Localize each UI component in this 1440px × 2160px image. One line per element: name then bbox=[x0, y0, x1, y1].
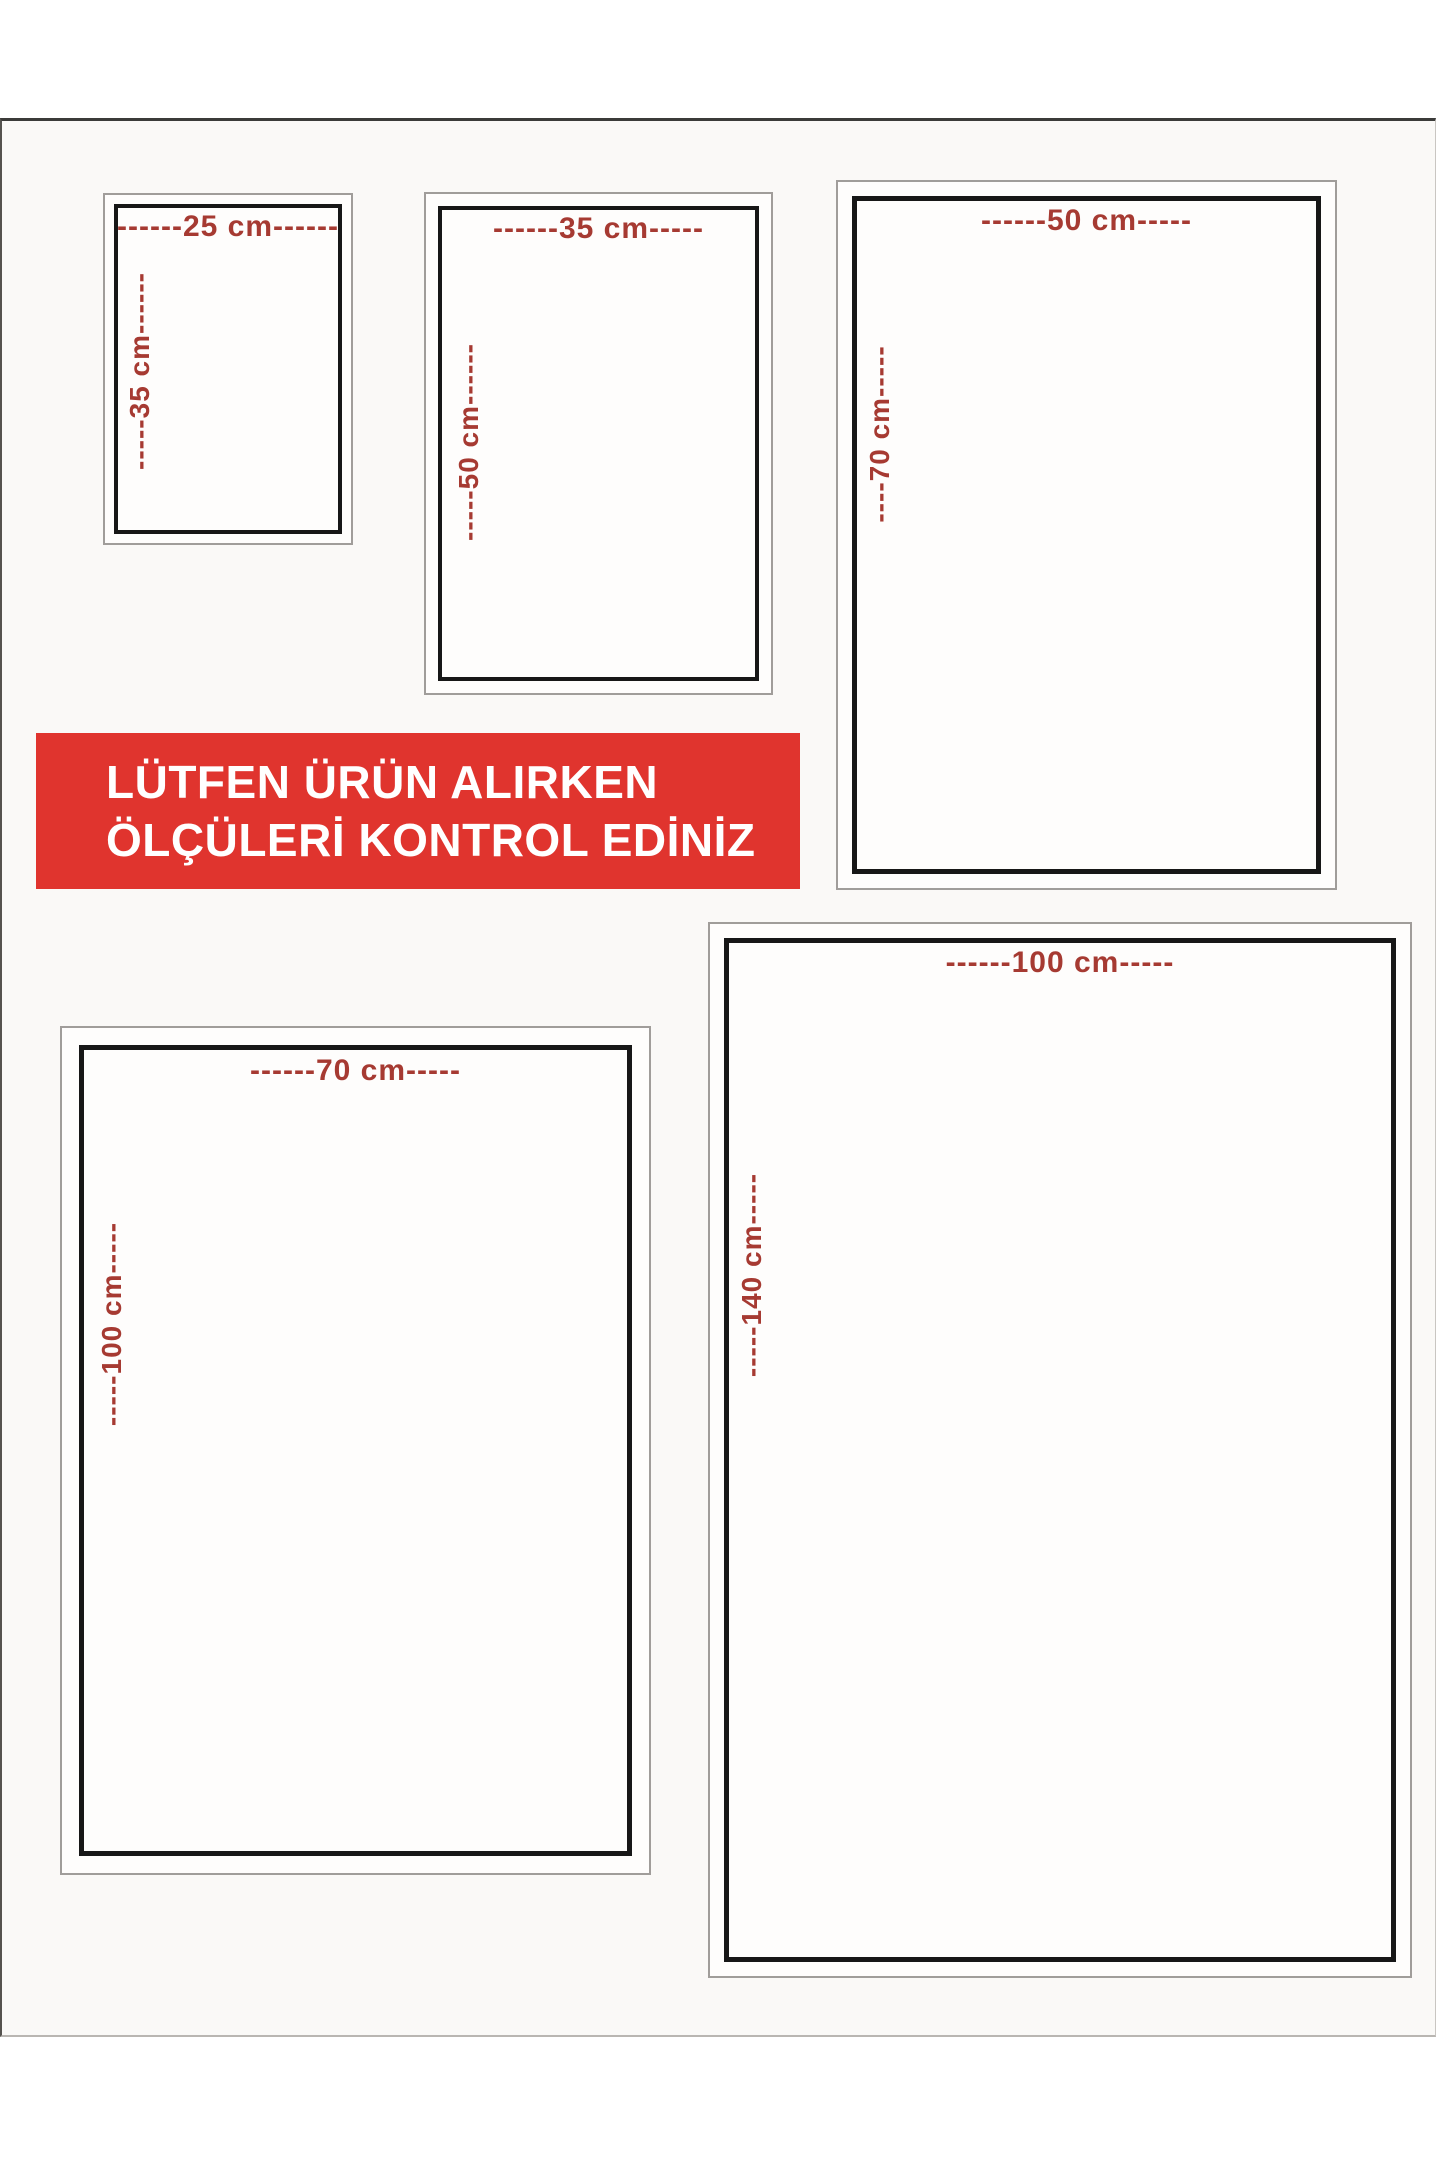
inner-border bbox=[79, 1045, 632, 1856]
size-box-50x70: ------50 cm----- ----70 cm----- bbox=[836, 180, 1337, 890]
width-dimension-label: ------50 cm----- bbox=[838, 204, 1335, 238]
height-dimension-label: -----140 cm----- bbox=[736, 1173, 768, 1377]
page: { "banner": { "line1": "LÜTFEN ÜRÜN ALIR… bbox=[0, 0, 1440, 2160]
width-dimension-label: ------25 cm------ bbox=[105, 210, 351, 244]
warning-banner: LÜTFEN ÜRÜN ALIRKEN ÖLÇÜLERİ KONTROL EDİ… bbox=[36, 733, 800, 889]
height-dimension-label: ----70 cm----- bbox=[864, 345, 896, 522]
size-box-25x35: ------25 cm------ -----35 cm------ bbox=[103, 193, 353, 545]
size-box-70x100: ------70 cm----- -----100 cm----- bbox=[60, 1026, 651, 1875]
inner-border bbox=[724, 938, 1396, 1962]
inner-border bbox=[852, 196, 1321, 874]
width-dimension-label: ------100 cm----- bbox=[710, 946, 1410, 980]
width-dimension-label: ------70 cm----- bbox=[62, 1054, 649, 1088]
warning-line-2: ÖLÇÜLERİ KONTROL EDİNİZ bbox=[106, 811, 800, 869]
size-box-100x140: ------100 cm----- -----140 cm----- bbox=[708, 922, 1412, 1978]
size-box-35x50: ------35 cm----- -----50 cm------ bbox=[424, 192, 773, 695]
warning-line-1: LÜTFEN ÜRÜN ALIRKEN bbox=[106, 753, 800, 811]
inner-border bbox=[438, 206, 759, 681]
height-dimension-label: -----50 cm------ bbox=[453, 343, 485, 541]
height-dimension-label: -----35 cm------ bbox=[124, 272, 156, 470]
width-dimension-label: ------35 cm----- bbox=[426, 212, 771, 246]
height-dimension-label: -----100 cm----- bbox=[96, 1222, 128, 1426]
